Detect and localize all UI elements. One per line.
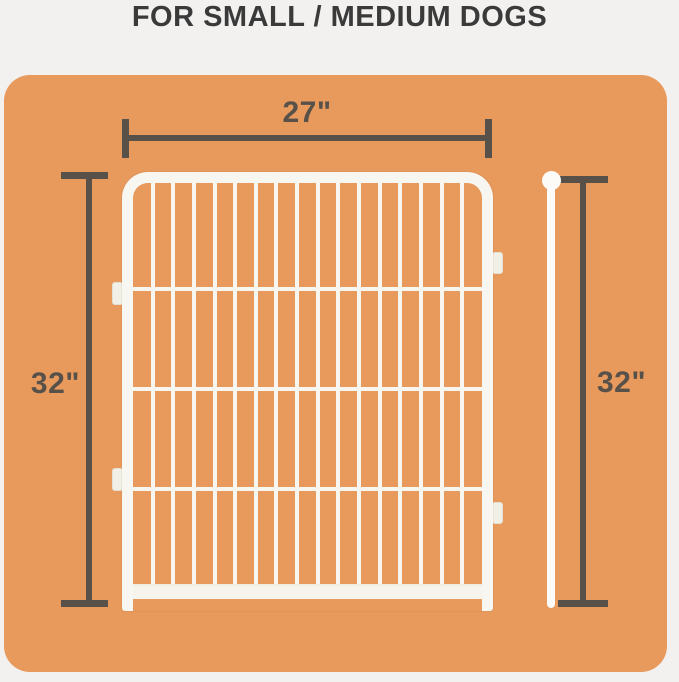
- stake-rod-ball-top: [542, 171, 561, 190]
- connector-tab-right-top: [492, 252, 503, 274]
- height-dimension-right-line: [580, 176, 586, 607]
- stake-rod: [547, 181, 555, 608]
- height-dimension-right-label: 32": [597, 366, 677, 400]
- height-dimension-left-label: 32": [0, 367, 80, 401]
- connector-tab-right-bottom: [492, 502, 503, 524]
- width-dimension-line: [122, 135, 492, 141]
- page-title: FOR SMALL / MEDIUM DOGS: [0, 1, 679, 34]
- height-dimension-left-line: [86, 172, 92, 607]
- height-dimension-right-cap-top: [558, 176, 608, 183]
- width-dimension-label: 27": [122, 96, 492, 130]
- panel-frame: [122, 172, 493, 611]
- height-dimension-right-cap-bottom: [558, 600, 608, 607]
- height-dimension-left-cap-bottom: [61, 600, 108, 607]
- product-dimension-diagram: FOR SMALL / MEDIUM DOGS 27" 32" 32": [0, 0, 679, 682]
- height-dimension-left-cap-top: [61, 172, 108, 179]
